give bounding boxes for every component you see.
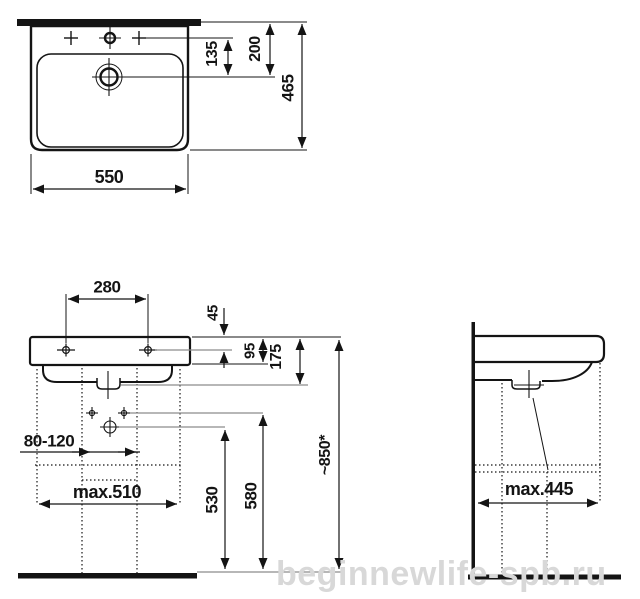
front-fixing-hole-right-icon: [139, 344, 157, 357]
dim-label-max510: max.510: [73, 483, 141, 501]
plan-extension-lines: [31, 22, 307, 194]
front-trap-fixing-left-icon: [86, 407, 98, 419]
dim-label-280: 280: [93, 279, 120, 296]
dim-label-580: 580: [243, 482, 260, 509]
dim-label-135: 135: [205, 41, 221, 67]
technical-drawing-washbasin: 550 465 135 200 280 45 95 175 80-120 max…: [0, 0, 640, 599]
watermark-text: beginnewlife-spb.ru: [276, 557, 607, 591]
drawing-linework: [0, 0, 640, 599]
dim-label-45: 45: [206, 305, 221, 321]
side-trap-pipe: [533, 398, 548, 470]
plan-tap-cross-right-icon: [132, 31, 146, 45]
front-floor: [18, 573, 197, 579]
front-leader-lines: [119, 350, 344, 572]
dim-label-175: 175: [269, 344, 285, 370]
side-view: [468, 322, 621, 580]
dim-label-850: ~850*: [318, 435, 334, 475]
dim-label-530: 530: [204, 486, 221, 513]
dim-label-max445: max.445: [505, 480, 573, 498]
dim-label-200: 200: [248, 36, 264, 62]
front-basin-body: [30, 337, 190, 365]
front-trap-fixing-right-icon: [118, 407, 130, 419]
side-basin-rim: [475, 336, 604, 362]
dim-label-465: 465: [280, 74, 297, 101]
front-outlet-icon: [100, 417, 120, 437]
dim-label-80-120: 80-120: [24, 433, 75, 450]
plan-tap-hole-icon: [99, 27, 121, 49]
plan-tap-cross-left-icon: [64, 31, 78, 45]
front-fixing-hole-left-icon: [57, 344, 75, 357]
side-wall: [472, 322, 476, 579]
dim-label-550: 550: [95, 168, 124, 186]
dim-label-95: 95: [243, 343, 258, 359]
plan-drain-icon: [92, 58, 126, 96]
side-basin-bowl: [542, 362, 592, 381]
side-hidden-lines: [475, 363, 601, 573]
